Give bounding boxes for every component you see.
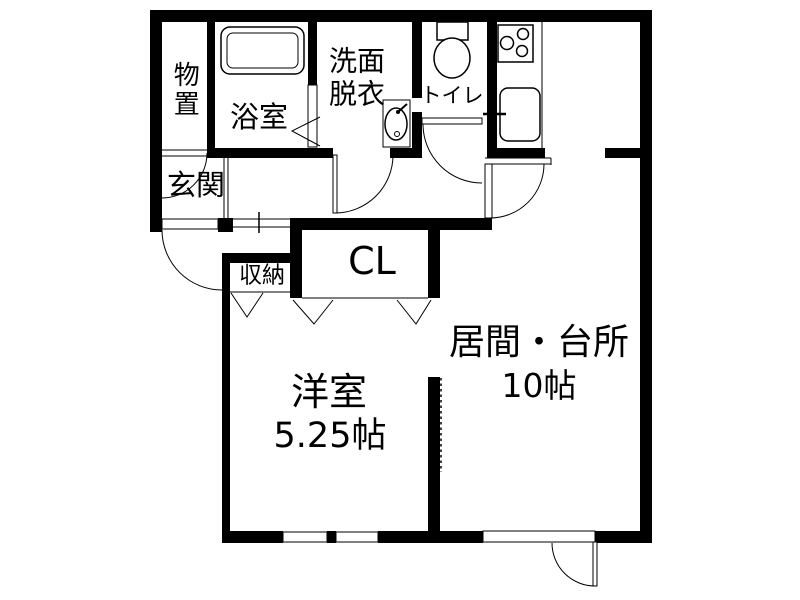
entrance-door — [162, 219, 222, 290]
wall-west-lower — [222, 253, 230, 531]
shuno-bifold-door — [230, 292, 293, 317]
wall-room-divider — [428, 377, 440, 531]
wall-bottom-middle — [378, 531, 483, 543]
washroom-door — [333, 155, 393, 213]
wall-left-upper — [150, 10, 162, 232]
label-shuno: 収納 — [239, 263, 285, 288]
stove-icon — [498, 25, 533, 62]
living-room-door — [485, 158, 551, 218]
wall-bottom-left — [222, 531, 283, 543]
window-mullion — [327, 531, 336, 543]
toilet-bowl-icon — [434, 22, 470, 78]
label-genkan: 玄関 — [167, 170, 225, 202]
floor-plan: 物置 浴室 洗面 脱衣 トイレ 玄関 収納 CL 洋室 5.25帖 居間・台所 … — [0, 0, 800, 600]
cl-bifold-doors — [293, 298, 431, 324]
label-ima-size: 10帖 — [502, 368, 577, 404]
label-yoshitsu-size: 5.25帖 — [274, 417, 387, 456]
toilet-door — [422, 118, 482, 183]
wall-hall-bottom — [290, 218, 492, 230]
label-senmen-2: 脱衣 — [329, 80, 385, 111]
label-monooki: 物置 — [170, 61, 199, 119]
walls — [150, 10, 652, 543]
wall-right-stub — [605, 148, 640, 158]
wall-bottom-right — [595, 531, 652, 543]
label-yokushitsu: 浴室 — [230, 102, 288, 134]
label-ima: 居間・台所 — [449, 323, 629, 363]
wall-storage-bath-divider — [207, 22, 215, 157]
floor-plan-drawing — [0, 0, 800, 600]
wall-entrance-hinge-block — [218, 218, 233, 232]
wall-right — [640, 10, 652, 543]
wall-bathroom-right-upper — [308, 22, 317, 85]
terrace-door — [483, 531, 597, 586]
bathroom-folding-door — [292, 85, 320, 147]
wall-kitchen-bottom — [487, 148, 545, 158]
wall-top — [150, 10, 652, 22]
wall-wash-bottom-right — [390, 148, 422, 158]
bathtub-icon — [221, 27, 304, 74]
label-yoshitsu: 洋室 — [291, 372, 367, 414]
washbasin-icon — [383, 100, 410, 147]
wall-kitchen-left — [487, 22, 497, 158]
wall-corner-block — [150, 217, 162, 232]
label-senmen-1: 洗面 — [329, 47, 385, 78]
wall-bath-bottom — [207, 148, 333, 158]
wall-cl-right — [428, 218, 440, 298]
entrance-step-line — [224, 158, 291, 233]
label-closet: CL — [348, 241, 396, 283]
label-toire: トイレ — [421, 84, 484, 107]
